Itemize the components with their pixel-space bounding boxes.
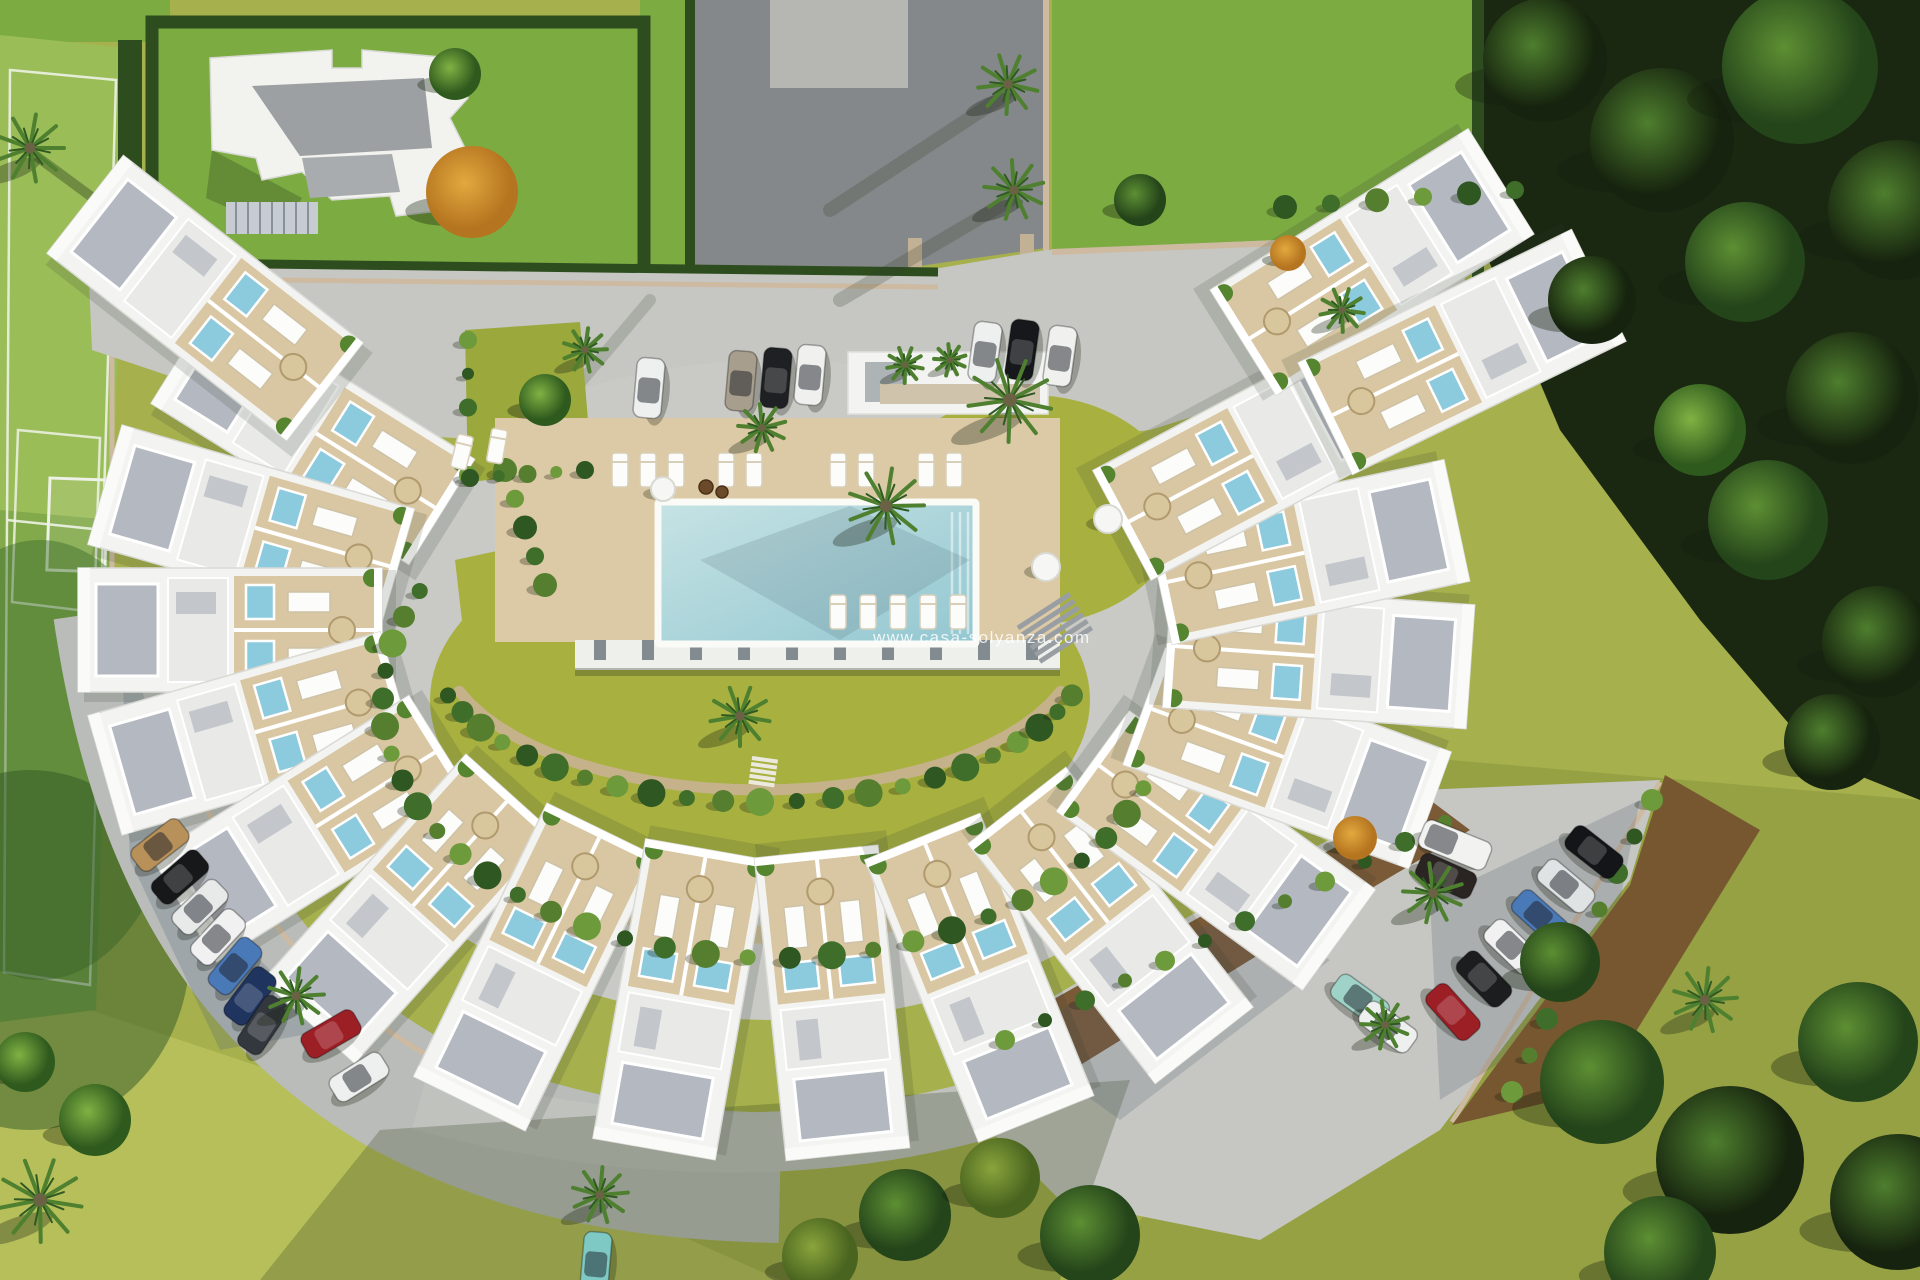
road-concrete-pad <box>770 0 908 88</box>
palm-trunk <box>1338 306 1345 313</box>
tree-canopy <box>859 1169 951 1261</box>
palm-trunk <box>292 992 301 1001</box>
shrub <box>1522 1048 1538 1064</box>
lounger-bed <box>612 453 628 487</box>
car-cabin <box>972 340 997 368</box>
shrub <box>995 1030 1015 1050</box>
shrub <box>576 461 594 479</box>
palm-trunk <box>1009 185 1019 195</box>
shrub <box>1198 934 1212 948</box>
shrub <box>1095 827 1117 849</box>
shrub <box>462 368 474 380</box>
palm-trunk <box>581 346 588 353</box>
sun-lounger <box>920 595 936 629</box>
shrub <box>372 687 394 709</box>
shrub <box>533 573 557 597</box>
shrub <box>637 779 665 807</box>
palm-trunk <box>596 1191 605 1200</box>
aerial-render: www.casa-solyanza.com <box>0 0 1920 1280</box>
tree-canopy <box>426 146 518 238</box>
shrub <box>1506 181 1524 199</box>
lounger-left <box>839 899 863 943</box>
shrub <box>712 790 734 812</box>
shrub <box>459 399 477 417</box>
tree-canopy <box>1685 202 1805 322</box>
palm-trunk <box>1700 995 1710 1005</box>
shrub <box>1322 195 1340 213</box>
shrub <box>1038 1013 1052 1027</box>
shrub <box>459 331 477 349</box>
unit-parapet <box>78 568 90 692</box>
lounger-bed <box>830 453 846 487</box>
palm-trunk <box>33 1193 46 1206</box>
sun-lounger <box>860 595 876 629</box>
unit-skylight <box>796 1018 822 1060</box>
watermark: www.casa-solyanza.com <box>873 628 1133 648</box>
round-table <box>1032 553 1060 581</box>
tree-canopy <box>1483 0 1607 122</box>
tree-canopy <box>1786 332 1918 464</box>
shrub <box>541 753 569 781</box>
shrub <box>474 861 502 889</box>
car-cabin <box>764 367 788 394</box>
shrub <box>379 629 407 657</box>
car-cabin <box>637 377 661 404</box>
shrub <box>510 887 526 903</box>
palm-trunk <box>735 711 745 721</box>
tree-canopy <box>1798 982 1918 1102</box>
sun-lounger <box>946 453 962 487</box>
villa-roof-gray-2 <box>302 154 400 198</box>
unit-mid-roof <box>780 999 890 1070</box>
sun-lounger <box>718 453 734 487</box>
shrub <box>1049 704 1065 720</box>
lawn-top-corner <box>0 0 170 42</box>
shrub <box>1627 829 1643 845</box>
car-cabin <box>1047 344 1072 372</box>
tree-canopy <box>960 1138 1040 1218</box>
car-cabin <box>1009 338 1034 366</box>
unit-gravel-roof <box>1387 615 1455 711</box>
round-table <box>651 477 675 501</box>
shrub <box>855 779 883 807</box>
deck-chair <box>716 486 728 498</box>
shrub <box>550 466 562 478</box>
shrub <box>1075 990 1095 1010</box>
shrub <box>384 746 400 762</box>
shrub <box>951 753 979 781</box>
tree-canopy <box>1520 922 1600 1002</box>
tree-canopy <box>59 1084 131 1156</box>
tree-canopy <box>1270 235 1306 271</box>
unit-gravel-roof <box>96 584 158 676</box>
tree-canopy <box>519 374 571 426</box>
sun-lounger <box>612 453 628 487</box>
lounger-right <box>1216 667 1259 690</box>
tree-canopy <box>1548 256 1636 344</box>
shrub <box>440 687 456 703</box>
lounger-bed <box>860 595 876 629</box>
tree-canopy <box>1708 460 1828 580</box>
tree-canopy <box>1333 816 1377 860</box>
shrub <box>516 744 538 766</box>
tree-canopy <box>1540 1020 1664 1144</box>
shrub <box>371 712 399 740</box>
shrub <box>1118 974 1132 988</box>
shrub <box>1641 789 1663 811</box>
shrub <box>1235 911 1255 931</box>
shrub <box>404 792 432 820</box>
car-cabin <box>729 370 753 397</box>
shrub <box>822 787 844 809</box>
shrub <box>1273 195 1297 219</box>
parasol <box>329 617 355 643</box>
shrub <box>902 930 924 952</box>
shrub <box>506 490 524 508</box>
shrub <box>1061 684 1083 706</box>
shrub <box>1457 181 1481 205</box>
shrub <box>1155 951 1175 971</box>
sun-lounger <box>830 453 846 487</box>
shrub <box>1395 832 1415 852</box>
shrub <box>573 912 601 940</box>
shrub <box>493 470 505 482</box>
tree-canopy <box>1114 174 1166 226</box>
sun-lounger <box>950 595 966 629</box>
tree-canopy <box>429 48 481 100</box>
shrub <box>617 930 633 946</box>
lounger-right <box>288 592 330 612</box>
shrub <box>1040 867 1068 895</box>
shrub <box>865 942 881 958</box>
palm-trunk <box>1381 1021 1389 1029</box>
shrub <box>1113 800 1141 828</box>
shrub <box>1365 188 1389 212</box>
shrub <box>789 793 805 809</box>
shrub <box>450 843 472 865</box>
shrub <box>412 583 428 599</box>
shrub <box>378 663 394 679</box>
tree-canopy <box>1654 384 1746 476</box>
shrub <box>1592 902 1608 918</box>
shrub <box>540 901 562 923</box>
palm-trunk <box>1003 79 1013 89</box>
shrub <box>494 734 510 750</box>
shrub <box>895 778 911 794</box>
shrub <box>392 769 414 791</box>
lounger-bed <box>746 453 762 487</box>
shrub <box>1012 889 1034 911</box>
shrub <box>526 547 544 565</box>
shrub <box>1278 894 1292 908</box>
round-table <box>1094 505 1122 533</box>
facade-shadow <box>575 668 1060 676</box>
palm-trunk <box>902 362 908 368</box>
shrub <box>461 469 479 487</box>
deck-chair <box>699 480 713 494</box>
car-cabin <box>584 1251 608 1278</box>
shrub <box>513 516 537 540</box>
shrub <box>924 767 946 789</box>
shrub <box>606 775 628 797</box>
shrub <box>740 949 756 965</box>
jacuzzi-right <box>1267 566 1301 605</box>
lounger-bed <box>830 595 846 629</box>
palm-trunk <box>880 500 892 512</box>
unit-skylight <box>1330 673 1371 698</box>
palm-trunk <box>758 424 766 432</box>
sun-lounger <box>890 595 906 629</box>
sun-lounger <box>918 453 934 487</box>
shrub <box>467 714 495 742</box>
shrub <box>1315 871 1335 891</box>
unit-skylight <box>176 592 216 614</box>
lounger-bed <box>920 595 936 629</box>
palm-trunk <box>1428 888 1438 898</box>
lounger-bed <box>918 453 934 487</box>
shrub <box>654 937 676 959</box>
shrub <box>393 606 415 628</box>
lounger-bed <box>890 595 906 629</box>
shrub <box>577 770 593 786</box>
shrub <box>1536 1008 1558 1030</box>
shrub <box>692 940 720 968</box>
lounger-bed <box>950 595 966 629</box>
palm-trunk <box>947 357 953 363</box>
lounger-bed <box>946 453 962 487</box>
shrub <box>779 947 801 969</box>
lounger-bed <box>718 453 734 487</box>
palm-trunk <box>1003 393 1016 406</box>
palm-trunk <box>25 143 36 154</box>
sun-lounger <box>830 595 846 629</box>
shrub <box>980 908 996 924</box>
shrub <box>1414 188 1432 206</box>
shrub <box>1074 853 1090 869</box>
jacuzzi-right <box>246 585 274 619</box>
car-cabin <box>798 364 822 391</box>
shrub <box>519 465 537 483</box>
shrub <box>746 788 774 816</box>
sun-lounger <box>746 453 762 487</box>
shrub <box>985 747 1001 763</box>
lounger-right <box>784 905 808 949</box>
shrub <box>679 790 695 806</box>
jacuzzi-right <box>1272 664 1302 700</box>
shrub <box>1135 780 1151 796</box>
tree-canopy <box>1784 694 1880 790</box>
unit-gravel-roof <box>794 1070 892 1141</box>
shrub <box>429 823 445 839</box>
shrub <box>938 916 966 944</box>
shrub <box>818 941 846 969</box>
